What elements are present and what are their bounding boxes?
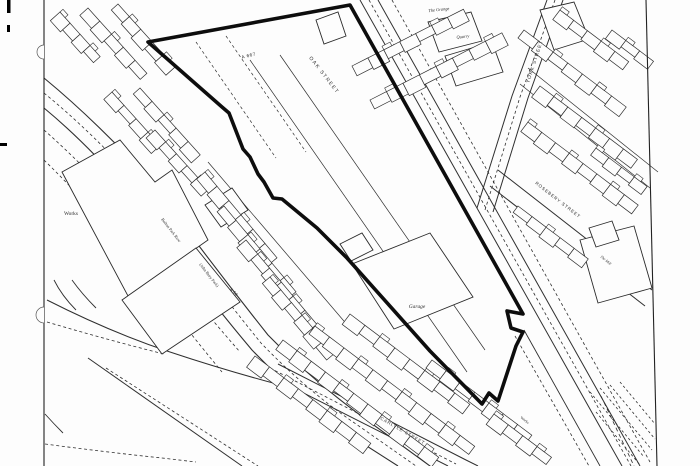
map-label-rosebery-street: ROSEBERY STREET — [534, 181, 581, 220]
road-york-edge-1 — [477, 0, 547, 208]
road-bl-straight — [88, 358, 242, 466]
road-site-inner-dash-1 — [196, 42, 276, 158]
road-bl-bottom-dash — [45, 444, 196, 462]
road-bl-fork-2 — [72, 280, 96, 308]
map-label-garage: Garage — [409, 304, 426, 310]
map-label-a667: A 667 — [241, 51, 257, 59]
hatch-long-dash — [601, 396, 634, 466]
building-oak-lone — [316, 12, 346, 44]
neatline-notch — [37, 45, 44, 59]
scan-tick — [7, 25, 10, 32]
map-label-works-small: Works — [520, 416, 531, 426]
map-label-the-grange: The Grange — [428, 6, 450, 13]
scan-tick — [7, 0, 11, 13]
map-canvas: A 667OAK STREETYORK STREETROSEBERY STREE… — [0, 0, 700, 466]
neatline-right — [646, 0, 657, 466]
map-page: A 667OAK STREETYORK STREETROSEBERY STREE… — [0, 0, 700, 466]
hatch-row — [596, 412, 640, 465]
map-label-oak-street: OAK STREET — [307, 56, 340, 96]
neatline-notch — [36, 307, 44, 323]
map-label-works: Works — [64, 211, 78, 217]
road-bl-bottom-solid — [45, 414, 63, 433]
scan-tick — [0, 143, 7, 146]
road-bl-straight-dash — [106, 368, 258, 466]
